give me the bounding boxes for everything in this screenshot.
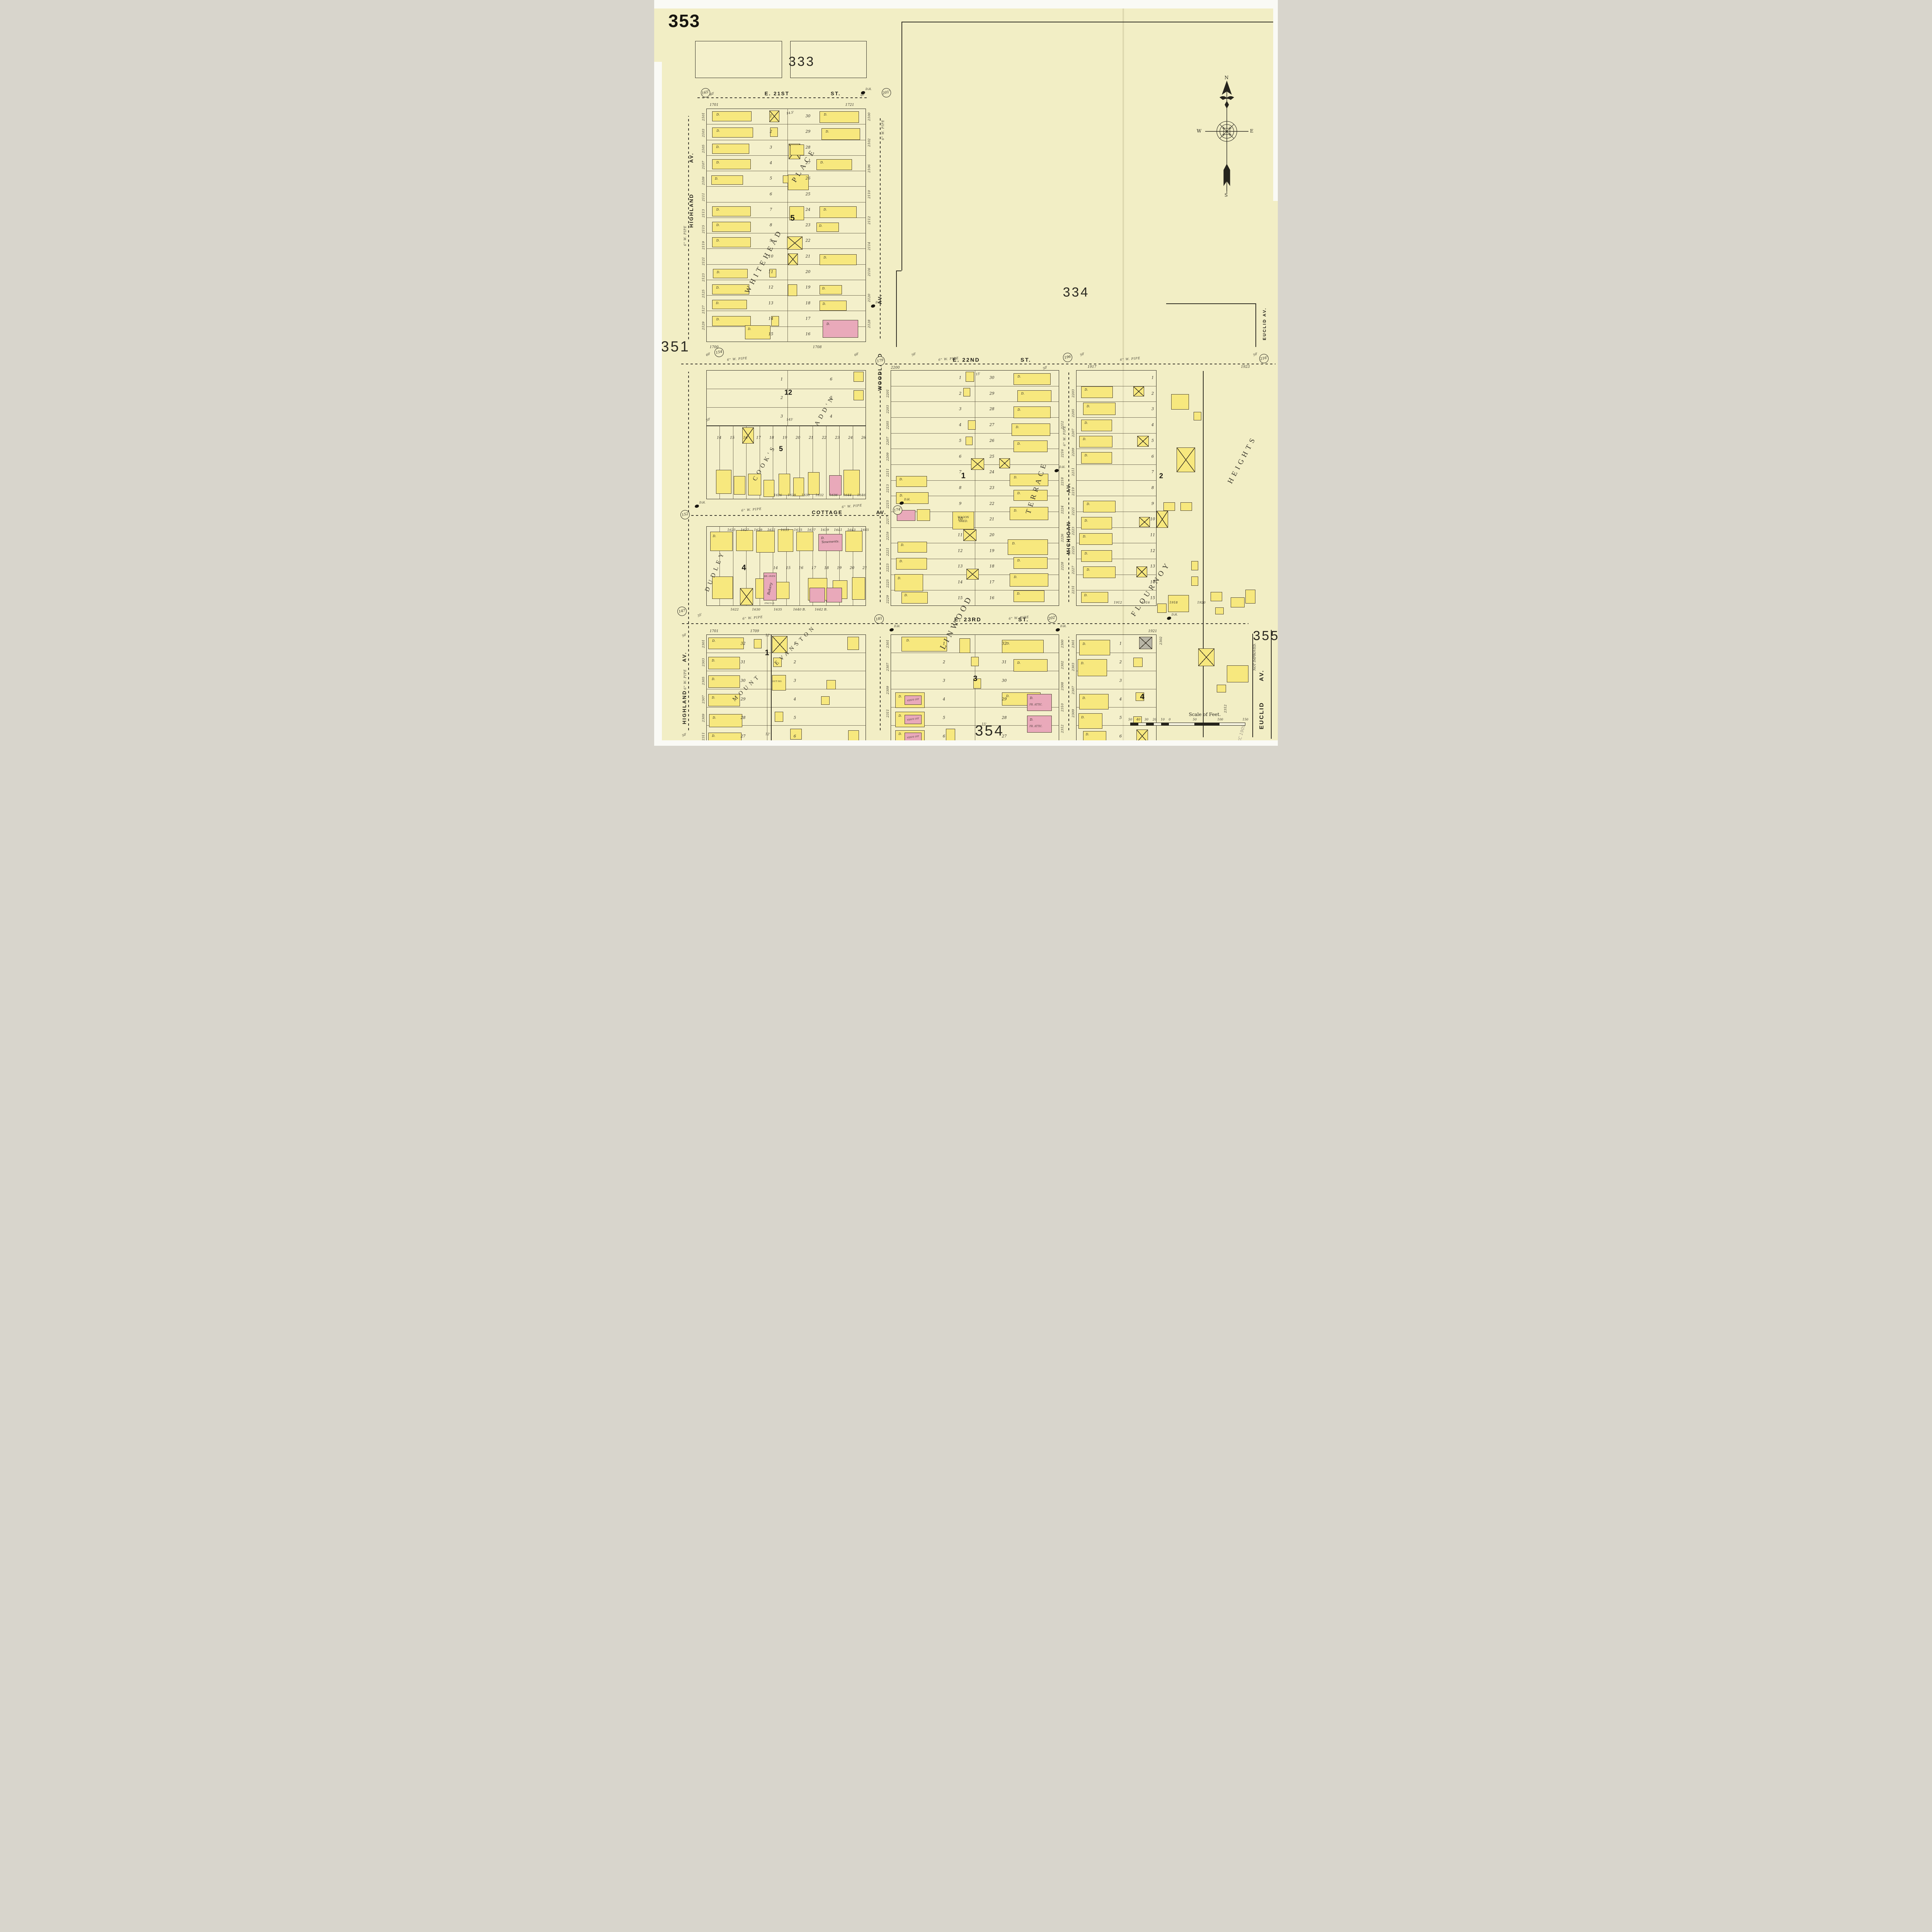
lot-number: 28	[806, 145, 811, 150]
address-number: 2225	[1071, 546, 1075, 555]
building-frame	[1191, 561, 1198, 570]
building-frame: D.	[1079, 640, 1110, 655]
building-frame	[852, 577, 865, 600]
address-number: 2308	[1061, 682, 1065, 690]
building-frame: D.	[1083, 403, 1116, 415]
address-number: 2209	[1071, 448, 1075, 457]
lot-line	[706, 311, 866, 311]
dwelling-label: D.	[1017, 592, 1020, 595]
building-frame: D.	[1002, 640, 1044, 653]
building-frame: D.	[708, 675, 740, 688]
lot-number: 10	[769, 254, 774, 259]
building-frame: D.	[1081, 420, 1112, 431]
address-number: 1918	[1169, 601, 1178, 605]
lot-number: 30	[741, 679, 746, 683]
building-frame: D.	[820, 206, 857, 218]
boundary-line	[1271, 630, 1272, 739]
building-frame: D.	[895, 574, 923, 591]
annotation: NOT IMPROVED.	[1253, 643, 1257, 671]
dwelling-label: D.	[906, 639, 910, 642]
building-frame: D.	[708, 638, 744, 649]
building-frame	[968, 420, 976, 430]
boundary-line	[1203, 371, 1204, 737]
address-number: 2203	[886, 405, 890, 413]
lot-number: 30	[990, 376, 995, 380]
lot-number: 6	[943, 735, 945, 739]
dwelling-label: D.	[712, 677, 715, 681]
address-number: 2231	[1071, 585, 1075, 594]
lot-number: 6	[830, 378, 832, 382]
lot-number: 19	[806, 286, 811, 290]
dwelling-label: D.	[1030, 696, 1033, 700]
dwelling-label: D.	[717, 270, 720, 274]
sheet-number: 355	[1253, 629, 1278, 644]
address-number: 50'	[681, 732, 687, 737]
building-frame: D.	[1017, 390, 1051, 402]
lot-number: 16	[806, 332, 811, 337]
building-frame	[1157, 604, 1167, 613]
lot-number: 3	[1151, 407, 1154, 412]
pipe-label: 6" W. PIPE	[684, 669, 687, 690]
boundary-line	[771, 634, 772, 743]
dwelling-label: D.	[715, 177, 718, 180]
address-number: 12'	[765, 733, 770, 736]
lot-number: 21	[809, 436, 813, 440]
dwelling-label: D.	[822, 287, 826, 290]
building-frame	[716, 470, 731, 494]
fire-hydrant-label: D.H.	[1059, 466, 1065, 469]
sheet-number: 351	[661, 339, 690, 355]
lot-number: 18	[769, 436, 774, 440]
circle-marker: 196	[1062, 352, 1073, 363]
address-number: 1646	[857, 493, 866, 497]
dwelling-label: D.	[712, 734, 715, 738]
building-frame: D.	[1079, 533, 1112, 545]
address-number: 2229	[886, 595, 890, 604]
lot-number: 13	[1150, 565, 1155, 569]
address-number: 35'	[697, 612, 702, 617]
dwelling-label: D.	[819, 224, 823, 228]
address-number: 2312	[1224, 704, 1228, 713]
address-number: 2129	[702, 321, 706, 330]
address-number: 60'	[705, 352, 711, 357]
address-number: 2223	[1071, 527, 1075, 535]
lot-number: 6	[1119, 735, 1122, 739]
lot-number: 30	[806, 114, 811, 119]
dwelling-label: D.	[1085, 454, 1088, 457]
address-number: 1630	[801, 493, 810, 497]
street-label: E. 21ST	[765, 91, 789, 97]
street-label: AV.	[1259, 670, 1265, 681]
building-frame	[796, 532, 813, 551]
lot-number: 20	[850, 566, 854, 570]
address-number: 1644	[843, 493, 852, 497]
lot-number: 19	[990, 549, 995, 553]
address-number: 2112	[867, 216, 871, 224]
dwelling-label: D.	[716, 129, 720, 133]
lot-number: 24	[848, 436, 853, 440]
lot-line	[706, 689, 866, 689]
building-outbuilding	[1156, 511, 1168, 528]
address-number: 1701	[710, 103, 719, 107]
dwelling-label: D.	[716, 223, 720, 227]
address-number: 2201	[886, 389, 890, 398]
lot-number: 12	[769, 286, 774, 290]
lot-line	[1076, 464, 1156, 465]
lot-number: 16	[799, 566, 803, 570]
building-frame: D.	[712, 206, 751, 216]
address-number: 12'	[765, 634, 770, 637]
address-number: 2311	[886, 709, 890, 718]
building-frame	[844, 470, 860, 495]
lot-number: 6	[1151, 454, 1154, 459]
building-frame: D.	[1079, 436, 1112, 447]
dwelling-label: D.	[1016, 425, 1019, 429]
lot-number: 1	[959, 376, 961, 380]
building-frame	[808, 472, 820, 495]
lot-number: 11	[1150, 533, 1155, 537]
dwelling-label: D.	[1014, 476, 1017, 479]
address-number: 2120	[867, 294, 871, 302]
lot-number: 16	[743, 436, 748, 440]
lot-number: 12	[958, 549, 963, 553]
building-frame	[754, 639, 762, 648]
building-frame: D.	[712, 237, 751, 247]
building-frame	[821, 696, 830, 705]
lot-number: 1	[770, 114, 772, 119]
water-pipe-line	[681, 364, 1276, 364]
address-number: 2224	[1061, 505, 1065, 514]
dwelling-label: D.	[820, 161, 824, 164]
address-number: 2309	[1071, 709, 1075, 718]
lot-number: 5	[1151, 439, 1154, 443]
address-number: 1709	[750, 629, 759, 633]
fire-hydrant-label: D.H.	[1172, 613, 1178, 616]
lot-number: 14	[1150, 580, 1155, 585]
circle-marker: 181	[874, 614, 884, 624]
dwelling-label: D.	[900, 494, 903, 497]
dwelling-label: D.	[716, 301, 719, 305]
street-label: HIGHLAND	[682, 690, 687, 724]
water-pipe-line	[880, 637, 881, 730]
sheet-number: 353	[668, 10, 701, 31]
lot-number: 17	[806, 316, 811, 321]
dwelling-label: D.	[1014, 575, 1017, 579]
address-number: 2227	[1071, 566, 1075, 574]
building-frame	[1217, 685, 1226, 692]
lot-number: 7	[1151, 470, 1154, 474]
lot-number: 9	[1151, 502, 1154, 506]
address-number: 2105	[702, 145, 706, 153]
building-frame: D.	[1014, 557, 1048, 569]
lot-number: 4	[830, 415, 832, 419]
lot-number: 11	[958, 533, 963, 537]
compass-rose: N E S W	[1200, 77, 1254, 201]
lot-number: 5	[830, 396, 832, 400]
dwelling-label: D.	[898, 732, 902, 736]
dwelling-label: D.	[1017, 408, 1021, 412]
circle-marker: 202'	[1047, 613, 1058, 624]
dwelling-label: D.	[821, 536, 825, 540]
lot-number: 4	[943, 697, 945, 702]
dwelling-label: D.	[1085, 388, 1088, 391]
address-number: 2301	[702, 639, 706, 648]
building-outbuilding	[1198, 648, 1214, 666]
lot-line	[1076, 496, 1156, 496]
address-number: 2213	[886, 484, 890, 493]
street-label: COTTAGE	[812, 510, 843, 515]
water-pipe-line	[697, 97, 868, 98]
block-number: 4	[742, 564, 746, 573]
address-number: 30	[1145, 718, 1148, 721]
building-stone	[1139, 637, 1152, 649]
dwelling-label: D.	[1082, 696, 1086, 700]
dwelling-label: D.	[900, 560, 903, 563]
lot-number: 7	[770, 207, 772, 212]
address-number: 2301	[1071, 639, 1075, 648]
pipe-label: 6" W. PIPE	[727, 356, 748, 362]
building-frame: D.	[1078, 659, 1107, 676]
lot-number: 29	[741, 697, 746, 702]
address-number: 1916	[1141, 601, 1150, 605]
building-outbuilding	[966, 569, 979, 580]
sheet-number: 354	[975, 723, 1004, 740]
building-frame: D.	[712, 111, 752, 121]
paper-margin	[1273, 0, 1278, 201]
lot-number: 27	[990, 423, 995, 427]
dwelling-label: D.	[713, 534, 716, 538]
lot-number: 3	[770, 145, 772, 150]
address-number: 1622	[730, 608, 739, 612]
address-number: 0	[1168, 718, 1170, 721]
lot-line	[706, 707, 866, 707]
dwelling-label: D.	[1017, 375, 1021, 378]
address-number: 1630	[752, 608, 760, 612]
address-number: 2127	[702, 305, 706, 314]
address-number: 1635	[794, 528, 803, 532]
lot-number: 24	[806, 207, 811, 212]
lot-number: 9	[770, 239, 772, 243]
lot-number: 8	[770, 223, 772, 228]
address-number: 2225	[886, 579, 890, 588]
building-frame: D.	[896, 558, 927, 570]
lot-number: 20	[796, 436, 800, 440]
address-number: 1637	[807, 528, 816, 532]
building-frame	[1227, 665, 1248, 682]
address-number: 2212	[1061, 421, 1065, 429]
building-frame	[736, 530, 753, 551]
lot-number: 2	[770, 130, 772, 134]
fire-hydrant-label: D.H.	[866, 88, 872, 91]
building-frame: D.	[712, 159, 751, 169]
building-frame: D.	[1083, 566, 1116, 578]
building-frame: D.	[711, 175, 743, 185]
building-frame: D.	[1014, 590, 1044, 602]
address-number: 2116	[867, 268, 871, 276]
building-brick: D.	[1027, 694, 1052, 711]
lot-number: 23	[990, 486, 995, 490]
address-number: 2102	[867, 138, 871, 147]
lot-number: 14	[773, 566, 778, 570]
address-number: 2221	[886, 548, 890, 556]
building-brick	[829, 475, 842, 495]
lot-number: 14	[769, 316, 774, 321]
lot-number: 5	[1119, 716, 1122, 720]
address-number: 1701	[710, 629, 719, 633]
dwelling-label: D.	[1021, 392, 1025, 395]
building-frame	[966, 372, 974, 382]
building-frame	[827, 680, 836, 689]
lot-number: 21	[862, 566, 867, 570]
building-frame	[775, 712, 783, 722]
dwelling-label: D.	[1087, 568, 1090, 571]
address-number: 2110	[867, 190, 871, 199]
building-brick: D.	[823, 320, 858, 338]
pipe-label: 6" W. PIPE	[741, 507, 762, 512]
building-frame: D.	[1078, 713, 1102, 729]
circle-marker: 165'	[700, 87, 711, 98]
address-number: 2301	[886, 639, 890, 648]
street-label: MICHIGAN	[1066, 521, 1071, 554]
fire-hydrant-dot	[889, 628, 894, 632]
address-number: 150	[1242, 718, 1248, 721]
address-number: 1636	[829, 493, 838, 497]
block-outline	[695, 41, 782, 78]
building-frame	[966, 437, 973, 445]
building-frame	[756, 531, 775, 553]
building-outbuilding	[1177, 447, 1195, 472]
paper-margin	[654, 62, 662, 746]
building-frame: D.	[713, 269, 748, 278]
dwelling-label: D.	[712, 659, 715, 662]
address-number: 2101	[702, 112, 706, 121]
building-frame	[971, 657, 979, 666]
address-number: 60'	[854, 352, 859, 357]
lot-number: 15	[769, 332, 774, 337]
lot-line	[706, 186, 866, 187]
lot-number: 22	[806, 239, 811, 243]
lot-number: 25	[806, 192, 811, 196]
dwelling-label: D.	[716, 239, 720, 242]
fire-hydrant-dot	[694, 504, 699, 508]
boundary-line	[1166, 303, 1255, 304]
building-outbuilding	[1136, 566, 1147, 577]
building-outbuilding	[1133, 386, 1144, 396]
water-pipe-line	[1068, 637, 1069, 730]
lot-number: 3	[794, 679, 796, 683]
building-outbuilding	[971, 458, 984, 470]
address-number: 50	[1193, 718, 1197, 721]
lot-number: 3	[781, 415, 783, 419]
lot-number: 23	[835, 436, 840, 440]
boundary-line	[1255, 303, 1256, 347]
address-number: 2128	[867, 320, 871, 328]
address-number: 2302	[1061, 661, 1065, 669]
dwelling-label: D.	[823, 256, 827, 259]
dwelling-label: D.	[712, 639, 716, 643]
address-number: 2119	[702, 241, 706, 250]
circle-marker: 216'	[1259, 353, 1269, 364]
lot-number: 26	[990, 439, 995, 443]
building-frame: D.	[712, 128, 753, 138]
lot-number: 29	[1002, 697, 1007, 702]
lot-number: 18	[990, 565, 995, 569]
lot-number: 8	[959, 486, 961, 490]
fire-hydrant-label: D.H.	[1060, 625, 1066, 628]
dwelling-label: D.	[901, 543, 904, 547]
annotation: FR. ATTIC.	[1029, 704, 1042, 706]
building-frame: D.	[816, 223, 839, 232]
address-number: 2207	[886, 437, 890, 445]
lot-number: 21	[990, 517, 995, 522]
address-number: 2300	[1061, 639, 1065, 648]
address-number: 2303	[1071, 663, 1075, 671]
address-number: 1633	[781, 528, 789, 532]
dwelling-label: D.	[1083, 642, 1086, 646]
annotation: ENG'S H.	[765, 602, 775, 605]
subdivision-label: HEIGHTS	[1226, 434, 1259, 485]
building-frame	[1191, 577, 1198, 586]
lot-line	[1076, 417, 1156, 418]
building-frame: D.	[709, 714, 742, 727]
street-label: AV.	[1066, 482, 1071, 493]
block-outline	[706, 370, 866, 426]
address-number: 2307	[1071, 686, 1075, 694]
dwelling-label: D.	[1083, 437, 1086, 441]
dwelling-label: D.	[823, 302, 826, 306]
address-number: 1625	[727, 528, 736, 532]
address-number: 2312	[1061, 724, 1065, 733]
address-number: 2309	[702, 714, 706, 722]
dwelling-label: D.	[1017, 442, 1021, 446]
building-outbuilding	[787, 236, 803, 250]
dwelling-label: D.	[1085, 519, 1088, 522]
address-number: 2223	[886, 563, 890, 572]
building-frame: D.	[1079, 694, 1109, 709]
building-frame	[1245, 590, 1255, 604]
building-outbuilding	[1139, 517, 1150, 527]
building-frame: D.	[1081, 592, 1108, 603]
building-frame	[1180, 502, 1192, 511]
scale-bar	[1130, 723, 1245, 726]
address-number: 40	[1136, 718, 1140, 721]
lot-number: 28	[1002, 716, 1007, 720]
address-number: 2310	[1061, 703, 1065, 712]
lot-line	[1076, 480, 1156, 481]
lot-line	[1076, 401, 1156, 402]
building-frame: D.	[1014, 406, 1051, 418]
address-number: 2209	[886, 452, 890, 461]
building-frame	[1171, 394, 1189, 410]
building-frame: D.	[1081, 452, 1112, 464]
lot-line	[706, 280, 866, 280]
lot-number: 1	[781, 378, 783, 382]
water-pipe-line	[682, 623, 1248, 624]
lot-number: 18	[806, 301, 811, 305]
lot-line	[787, 370, 788, 426]
block-number: 12	[784, 389, 792, 397]
lot-number: 5	[959, 439, 961, 443]
lot-line	[706, 248, 866, 249]
lot-number: 26	[861, 436, 866, 440]
lot-number: 4	[1119, 697, 1122, 702]
address-number: 100	[1217, 718, 1223, 721]
boundary-line	[901, 22, 1277, 22]
lot-number: 12	[1150, 549, 1155, 553]
dwelling-label: D.	[827, 322, 830, 326]
building-frame: D.	[820, 301, 847, 311]
dwelling-label: D.	[1007, 642, 1010, 645]
